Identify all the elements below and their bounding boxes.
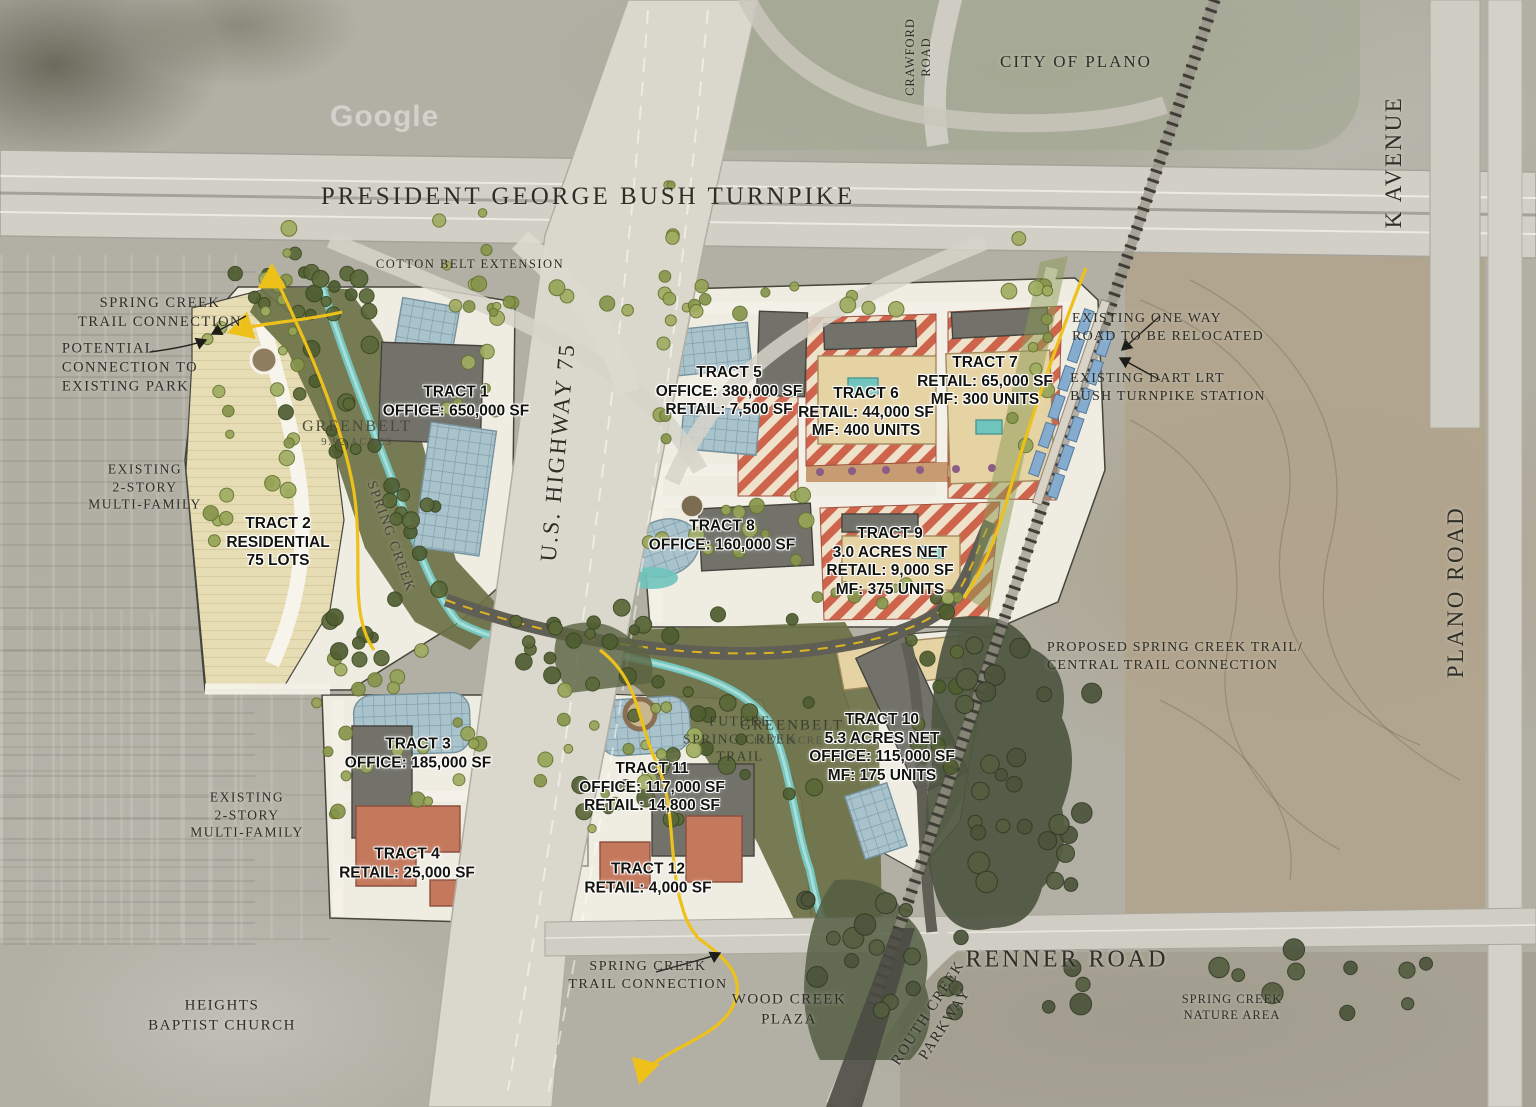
turnpike-label: PRESIDENT GEORGE BUSH TURNPIKE [321,181,855,214]
potential-connection-label: POTENTIAL CONNECTION TO EXISTING PARK [62,340,198,397]
site-plan-map: Google PRESIDENT GEORGE BUSH TURNPIKE CO… [0,0,1536,1107]
heights-baptist-label: HEIGHTS BAPTIST CHURCH [148,997,296,1036]
tract-4-label: TRACT 4RETAIL: 25,000 SF [339,845,475,882]
plano-road-label: PLANO ROAD [1441,506,1471,679]
tract-6-label: TRACT 6RETAIL: 44,000 SFMF: 400 UNITS [798,385,934,441]
renner-road-label: RENNER ROAD [965,944,1168,975]
roundabout [251,347,277,373]
tract-3-label: TRACT 3OFFICE: 185,000 SF [345,735,491,772]
existing-mf-west-label: EXISTING 2-STORY MULTI-FAMILY [88,461,201,514]
tract-9-label: TRACT 93.0 ACRES NETRETAIL: 9,000 SFMF: … [826,525,953,599]
tract-7-label: TRACT 7RETAIL: 65,000 SFMF: 300 UNITS [917,354,1053,410]
k-avenue-road [1430,0,1480,428]
tract-11-label: TRACT 11OFFICE: 117,000 SFRETAIL: 14,800… [579,760,725,816]
existing-mf-south-label: EXISTING 2-STORY MULTI-FAMILY [190,789,303,842]
tract-10-label: TRACT 105.3 ACRES NETOFFICE: 115,000 SFM… [809,711,955,785]
tract-1-label: TRACT 1OFFICE: 650,000 SF [383,383,529,420]
tract-8-label: TRACT 8OFFICE: 160,000 SF [649,517,795,554]
one-way-label: EXISTING ONE WAY ROAD TO BE RELOCATED [1072,310,1264,346]
greenbelt-west-label: GREENBELT 9.92 ACRES [302,417,412,449]
tract-2-label: TRACT 2RESIDENTIAL75 LOTS [226,515,329,571]
tract-12-label: TRACT 12RETAIL: 4,000 SF [584,860,711,897]
tract-5-label: TRACT 5OFFICE: 380,000 SFRETAIL: 7,500 S… [656,364,802,420]
cotton-belt-label: COTTON BELT EXTENSION [376,256,564,272]
crawford-road-label: CRAWFORD ROAD [902,18,935,96]
city-of-plano-label: CITY OF PLANO [1000,51,1152,73]
k-avenue-label: K AVENUE [1379,96,1409,229]
spring-creek-trail-nw-label: SPRING CREEK TRAIL CONNECTION [78,294,242,332]
spring-creek-nature-label: SPRING CREEK NATURE AREA [1182,991,1283,1024]
spring-creek-trail-s-label: SPRING CREEK TRAIL CONNECTION [568,958,727,994]
wood-creek-plaza-label: WOOD CREEK PLAZA [732,991,847,1030]
google-watermark: Google [330,100,439,134]
dart-label: EXISTING DART LRT BUSH TURNPIKE STATION [1070,370,1266,406]
future-trail-label: FUTURE SPRING CREEK TRAIL [683,713,797,766]
proposed-trail-label: PROPOSED SPRING CREEK TRAIL/ CENTRAL TRA… [1047,639,1303,675]
